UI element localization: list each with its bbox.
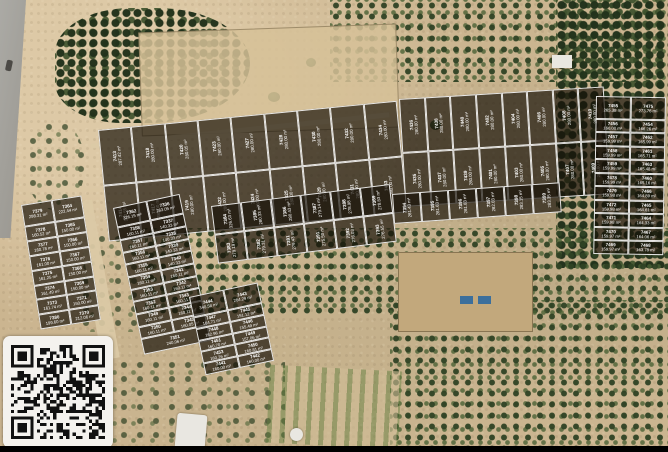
plot-area: 159.98 m² — [594, 207, 629, 212]
plot-area: 159.99 m² — [595, 153, 630, 158]
plot-row: 7456160.00 m²7454166.26 m² — [595, 119, 665, 134]
plot-cell: 7462165.99 m² — [630, 133, 665, 147]
plot-area: 164.33 m² — [629, 221, 664, 226]
plot-cell: 7471159.98 m² — [594, 213, 629, 227]
bottom-border-bar — [0, 446, 668, 452]
plot-area: 164.61 m² — [629, 207, 664, 212]
plot-row: 7479159.98 m²7466164.89 m² — [594, 186, 664, 201]
plot-cell: 7454166.26 m² — [630, 120, 665, 134]
plot-cell: 7459159.99 m² — [595, 159, 630, 173]
plot-area: 159.98 m² — [594, 220, 629, 225]
plot-cell: 7430280.00 m² — [297, 107, 336, 166]
plot-area: 159.99 m² — [595, 139, 630, 144]
plot-cell: 7458159.99 m² — [595, 146, 630, 160]
plot-cell: 7394281.43 m² — [392, 192, 422, 224]
plot-cell: 7402280.00 m² — [476, 93, 505, 148]
plot-cell: 7408280.00 m² — [552, 88, 581, 143]
plot-cell: 7406280.00 m² — [527, 90, 556, 145]
plot-cell: 7432280.00 m² — [330, 104, 369, 163]
garden-beds — [266, 365, 402, 450]
plot-cell: 7385280.33 m² — [241, 199, 274, 231]
plot-row: 7459159.99 m²7463165.48 m² — [595, 159, 665, 174]
plot-block-east-column: 7455265.38 m²7475273.76 m²7456160.00 m²7… — [593, 96, 666, 255]
plot-cell: 7404280.00 m² — [501, 91, 530, 146]
plot-cell: 7468163.78 m² — [628, 241, 663, 255]
plot-cell: 7392276.03 m² — [334, 217, 367, 249]
plot-row: 7458159.99 m²7461165.71 m² — [595, 146, 665, 161]
plot-cell: 7461165.71 m² — [630, 147, 665, 161]
plot-row: 7471159.98 m²7464164.33 m² — [594, 213, 664, 228]
plot-row: 7457159.99 m²7462165.99 m² — [595, 132, 665, 147]
plot-area: 280.00 m² — [489, 96, 497, 145]
plot-cell: 7456160.00 m² — [595, 119, 630, 133]
plot-cell: 7413287.42 m² — [98, 127, 137, 186]
aerial-plot-map: 7413287.42 m²7418280.00 m²7420280.05 m²7… — [0, 0, 668, 452]
plot-cell: 7434280.00 m² — [363, 101, 402, 160]
plot-cell: 7386280.43 m² — [271, 195, 304, 227]
plot-cell: 7436280.00 m² — [399, 97, 428, 152]
plot-cell: 7465164.61 m² — [629, 201, 664, 215]
plot-area: 265.38 m² — [596, 108, 631, 113]
plot-cell: 7387279.14 m² — [300, 191, 333, 223]
plot-row: 7478159.99 m²7460165.16 m² — [594, 173, 664, 188]
plot-cell: 7479159.98 m² — [594, 186, 629, 200]
plot-cell: 7466164.89 m² — [629, 187, 664, 201]
plot-area: 165.16 m² — [629, 180, 664, 185]
plot-cell: 7393276.55 m² — [363, 213, 396, 245]
plot-cell: 7475273.76 m² — [631, 97, 666, 121]
plot-cell: 7464164.33 m² — [629, 214, 664, 228]
plot-cell: 7395281.63 m² — [420, 190, 450, 222]
plot-cell: 7399283.35 m² — [532, 182, 562, 214]
plot-cell: 7383279.19 m² — [215, 231, 248, 263]
plot-cell: 7418280.00 m² — [131, 123, 170, 182]
plot-area: 273.76 m² — [631, 108, 666, 113]
qr-code-icon — [11, 345, 105, 439]
plot-cell: 7438280.00 m² — [425, 96, 454, 151]
plot-cell: 7381279.43 m² — [274, 224, 307, 256]
plot-cell: 7420280.05 m² — [164, 120, 203, 179]
plot-row: 7469159.97 m²7468163.78 m² — [593, 240, 663, 255]
plot-cell: 7397282.03 m² — [476, 186, 506, 218]
plot-area: 159.97 m² — [593, 247, 628, 252]
plot-cell: 7467164.06 m² — [628, 228, 663, 242]
plot-cell: 7478159.99 m² — [594, 173, 629, 187]
container — [478, 296, 491, 304]
plot-cell: 7398283.15 m² — [504, 184, 534, 216]
plot-cell: 7455265.38 m² — [596, 96, 631, 120]
plot-area: 165.99 m² — [630, 140, 665, 145]
plot-cell: 7463165.48 m² — [630, 160, 665, 174]
plot-cell: 7460165.16 m² — [629, 174, 664, 188]
plot-cell: 7396281.83 m² — [448, 188, 478, 220]
plot-area: 165.71 m² — [630, 153, 665, 158]
plot-cell: 7384326.63 m² — [211, 202, 244, 234]
plot-cell: 7382279.31 m² — [244, 227, 277, 259]
plot-cell: 7423280.00 m² — [198, 117, 237, 176]
dome-structure — [290, 428, 303, 441]
plot-cell: 7428280.00 m² — [264, 110, 303, 169]
plot-area: 159.98 m² — [594, 193, 629, 198]
qr-code-panel — [3, 336, 113, 448]
plot-row: 7472159.98 m²7465164.61 m² — [594, 200, 664, 215]
plot-cell: 7389278.83 m² — [360, 184, 393, 216]
plot-area: 163.78 m² — [628, 248, 663, 253]
plot-cell: 7472159.98 m² — [594, 200, 629, 214]
plot-area: 159.99 m² — [595, 166, 630, 171]
plot-cell: 7469159.97 m² — [593, 240, 628, 254]
plot-area: 160.00 m² — [595, 126, 630, 131]
plot-row: 7455265.38 m²7475273.76 m² — [596, 96, 666, 120]
plot-area: 166.26 m² — [630, 126, 665, 131]
plot-area: 164.89 m² — [629, 194, 664, 199]
shed — [552, 55, 572, 68]
plot-cell: 7388278.98 m² — [330, 188, 363, 220]
plot-cell: 7457159.99 m² — [595, 132, 630, 146]
plot-area: 159.99 m² — [594, 180, 629, 185]
plot-row: 7470159.97 m²7467164.06 m² — [593, 227, 663, 242]
plot-area: 165.48 m² — [630, 167, 665, 172]
plot-cell: 7440280.00 m² — [450, 94, 479, 149]
plot-cell: 7391275.50 m² — [304, 220, 337, 252]
plot-area: 164.06 m² — [628, 234, 663, 239]
container — [460, 296, 473, 304]
plot-cell: 7470159.97 m² — [593, 227, 628, 241]
plot-area: 159.97 m² — [593, 234, 628, 239]
farm-yard — [398, 252, 533, 332]
plot-cell: 7427280.00 m² — [231, 114, 270, 173]
